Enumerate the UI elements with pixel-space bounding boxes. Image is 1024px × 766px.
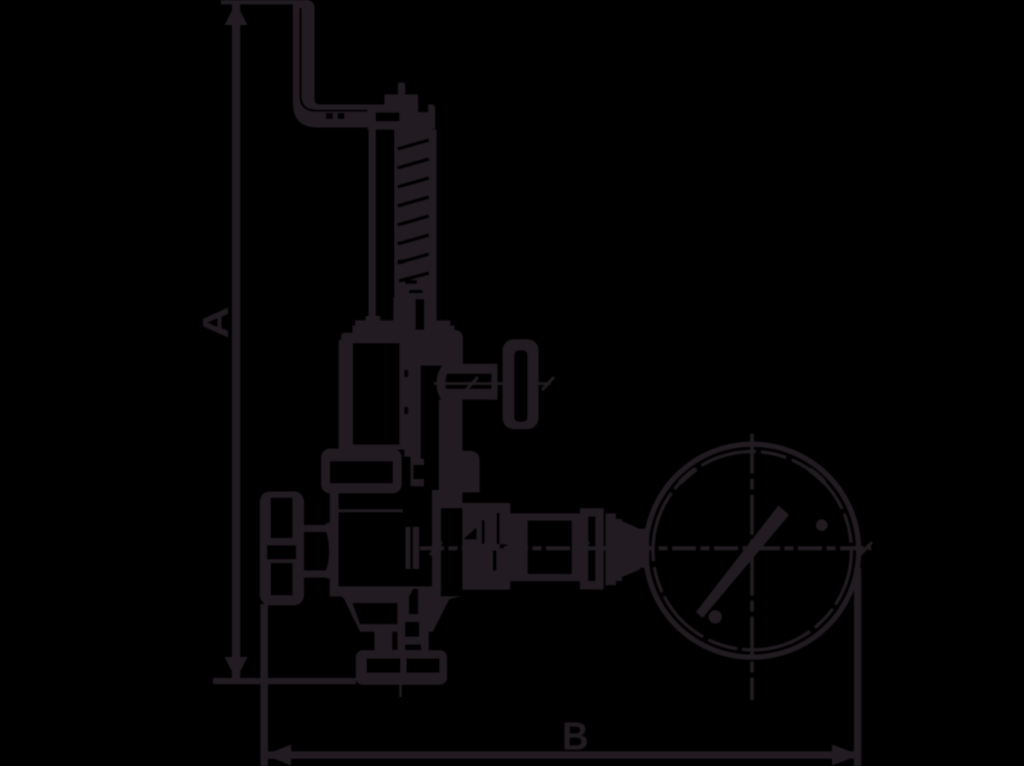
svg-text:A: A bbox=[195, 307, 236, 339]
svg-text:B: B bbox=[562, 716, 589, 759]
